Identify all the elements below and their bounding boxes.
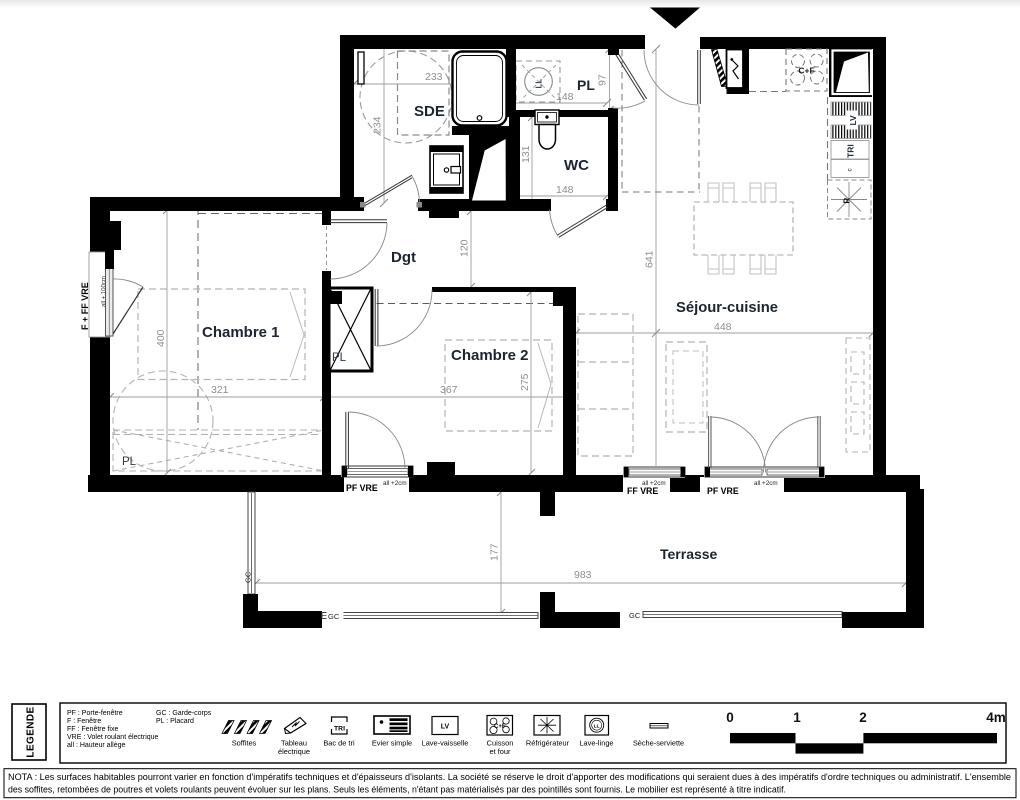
svg-text:PL: PL — [577, 77, 595, 93]
svg-text:321: 321 — [211, 384, 229, 396]
svg-text:C+F: C+F — [494, 724, 506, 730]
svg-text:PL : Placard: PL : Placard — [156, 718, 194, 725]
svg-text:F : Fenêtre: F : Fenêtre — [67, 718, 101, 725]
svg-text:GC : Garde-corps: GC : Garde-corps — [156, 710, 212, 717]
svg-text:FF VRE: FF VRE — [627, 486, 658, 496]
svg-text:131: 131 — [520, 145, 532, 163]
svg-text:2: 2 — [859, 710, 867, 725]
svg-text:PF VRE: PF VRE — [346, 483, 378, 493]
svg-text:all +2cm: all +2cm — [383, 480, 407, 487]
svg-text:1: 1 — [793, 710, 801, 725]
svg-text:FF : Fenêtre fixe: FF : Fenêtre fixe — [67, 726, 118, 733]
svg-text:LEGENDE: LEGENDE — [26, 706, 37, 757]
svg-text:LL: LL — [594, 724, 600, 730]
svg-text:all + 100cm: all + 100cm — [102, 276, 108, 307]
svg-text:SDE: SDE — [414, 103, 445, 120]
svg-text:177: 177 — [489, 543, 501, 561]
svg-text:GC: GC — [328, 612, 340, 621]
svg-text:233: 233 — [425, 71, 443, 83]
svg-text:all +2cm: all +2cm — [642, 480, 666, 487]
svg-text:et four: et four — [490, 747, 511, 756]
svg-text:R: R — [843, 198, 852, 204]
svg-text:all +2cm: all +2cm — [754, 480, 778, 487]
svg-text:GC: GC — [629, 611, 641, 620]
svg-text:WC: WC — [564, 157, 589, 174]
svg-text:Terrasse: Terrasse — [660, 546, 718, 562]
svg-text:GC: GC — [244, 571, 253, 583]
svg-text:NOTA : Les surfaces habitables: NOTA : Les surfaces habitables pourront … — [8, 772, 1011, 783]
svg-text:Lave-linge: Lave-linge — [579, 739, 613, 748]
svg-text:Chambre 2: Chambre 2 — [451, 347, 529, 364]
svg-text:234: 234 — [372, 116, 384, 134]
svg-text:148: 148 — [556, 184, 574, 196]
svg-text:VRE : Volet roulant électrique: VRE : Volet roulant électrique — [67, 734, 159, 741]
svg-text:PL: PL — [332, 352, 347, 364]
svg-text:LL: LL — [535, 79, 544, 89]
svg-text:97: 97 — [597, 74, 609, 86]
svg-text:983: 983 — [574, 569, 592, 581]
svg-text:148: 148 — [556, 91, 574, 103]
svg-text:TRI: TRI — [334, 726, 345, 733]
svg-text:120: 120 — [459, 239, 471, 257]
svg-text:C+F: C+F — [798, 66, 814, 76]
svg-text:Lave-vaisselle: Lave-vaisselle — [422, 739, 469, 748]
svg-text:LV: LV — [848, 115, 858, 126]
svg-text:Evier simple: Evier simple — [372, 739, 412, 748]
svg-text:Sèche-serviette: Sèche-serviette — [633, 739, 684, 748]
svg-text:275: 275 — [519, 373, 531, 391]
svg-text:641: 641 — [644, 250, 656, 268]
svg-text:des soffites, retombées de pou: des soffites, retombées de poutres et vo… — [8, 784, 786, 795]
svg-text:Dgt: Dgt — [391, 249, 416, 266]
svg-text:électrique: électrique — [278, 747, 310, 756]
svg-text:all : Hauteur allège: all : Hauteur allège — [67, 742, 125, 749]
svg-text:PF VRE: PF VRE — [707, 486, 739, 496]
svg-text:LV: LV — [441, 724, 450, 731]
svg-text:Soffites: Soffites — [232, 739, 257, 748]
svg-text:Bac de tri: Bac de tri — [323, 739, 355, 748]
svg-text:TRI: TRI — [846, 144, 856, 158]
svg-text:367: 367 — [440, 384, 458, 396]
svg-text:PF : Porte-fenêtre: PF : Porte-fenêtre — [67, 710, 123, 717]
svg-text:Séjour-cuisine: Séjour-cuisine — [676, 300, 778, 316]
svg-text:Chambre 1: Chambre 1 — [202, 324, 280, 341]
svg-text:448: 448 — [714, 321, 732, 333]
svg-text:0: 0 — [726, 710, 734, 725]
svg-text:4m: 4m — [986, 710, 1006, 725]
svg-text:PL: PL — [122, 456, 137, 468]
svg-text:F + FF VRE: F + FF VRE — [80, 282, 90, 330]
svg-text:400: 400 — [155, 329, 167, 347]
svg-text:Réfrigérateur: Réfrigérateur — [526, 739, 570, 748]
